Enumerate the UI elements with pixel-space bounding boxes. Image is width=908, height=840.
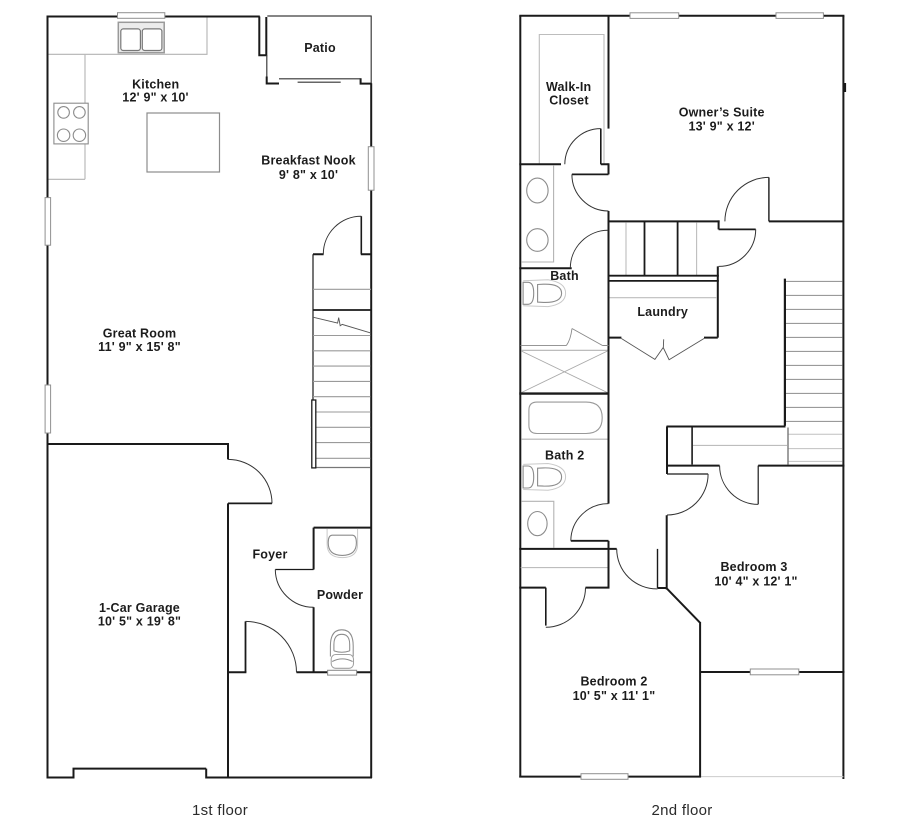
svg-text:Walk-In: Walk-In	[546, 80, 591, 94]
svg-text:Powder: Powder	[317, 588, 363, 602]
svg-text:Closet: Closet	[549, 94, 589, 108]
svg-text:12' 9" x 10': 12' 9" x 10'	[122, 91, 188, 105]
svg-text:Patio: Patio	[304, 41, 336, 55]
svg-text:11' 9" x 15' 8": 11' 9" x 15' 8"	[98, 340, 181, 354]
svg-text:1st floor: 1st floor	[192, 802, 248, 819]
svg-text:10' 5" x 19' 8": 10' 5" x 19' 8"	[98, 615, 181, 629]
svg-text:Bath 2: Bath 2	[545, 449, 584, 463]
svg-text:Bedroom 3: Bedroom 3	[720, 560, 787, 574]
svg-text:Bath: Bath	[550, 269, 579, 283]
svg-text:Great Room: Great Room	[103, 327, 177, 341]
svg-text:Bedroom 2: Bedroom 2	[580, 675, 647, 689]
svg-text:Foyer: Foyer	[252, 548, 287, 562]
svg-text:10' 4" x 12' 1": 10' 4" x 12' 1"	[714, 575, 797, 589]
svg-text:9' 8" x 10': 9' 8" x 10'	[279, 168, 338, 182]
svg-text:1-Car Garage: 1-Car Garage	[99, 601, 180, 615]
svg-text:Owner’s Suite: Owner’s Suite	[679, 106, 765, 120]
svg-text:Laundry: Laundry	[637, 305, 688, 319]
svg-text:10' 5" x 11' 1": 10' 5" x 11' 1"	[573, 689, 656, 703]
svg-text:2nd floor: 2nd floor	[651, 802, 712, 819]
svg-text:Kitchen: Kitchen	[132, 78, 179, 92]
svg-text:13' 9" x 12': 13' 9" x 12'	[688, 120, 754, 134]
svg-text:Breakfast Nook: Breakfast Nook	[261, 154, 356, 168]
